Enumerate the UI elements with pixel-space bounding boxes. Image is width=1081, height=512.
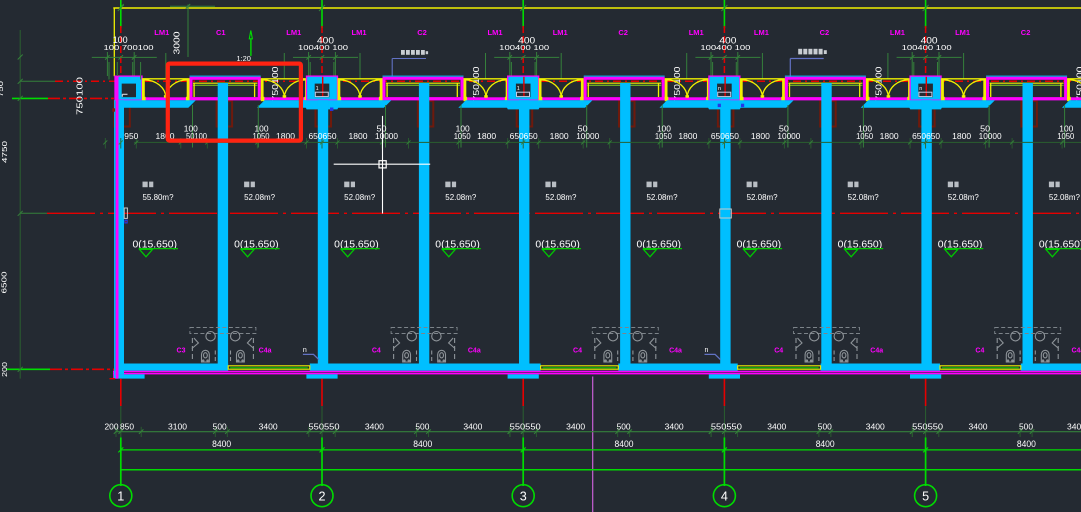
svg-text:C2: C2 — [1021, 28, 1031, 37]
svg-text:LM1: LM1 — [955, 28, 970, 37]
svg-text:52.08m?: 52.08m? — [344, 193, 376, 202]
svg-text:LM1: LM1 — [154, 28, 169, 37]
svg-text:3400: 3400 — [767, 422, 786, 432]
svg-text:500: 500 — [818, 422, 832, 432]
svg-text:500: 500 — [1019, 422, 1033, 432]
svg-text:LM1: LM1 — [890, 28, 905, 37]
svg-text:1: 1 — [517, 86, 520, 92]
svg-text:10000: 10000 — [375, 131, 398, 141]
svg-text:8400: 8400 — [615, 439, 634, 449]
svg-text:1: 1 — [117, 489, 124, 503]
svg-text:750: 750 — [0, 81, 5, 97]
svg-text:750100: 750100 — [472, 66, 481, 102]
svg-text:850: 850 — [120, 422, 134, 432]
svg-text:100 700100: 100 700100 — [104, 43, 154, 52]
svg-text:200: 200 — [0, 362, 9, 377]
svg-text:C4a: C4a — [870, 348, 883, 355]
svg-text:52.08m?: 52.08m? — [545, 193, 577, 202]
svg-text:100400 100: 100400 100 — [499, 43, 549, 52]
svg-text:750100: 750100 — [75, 76, 84, 115]
svg-text:C2: C2 — [820, 28, 830, 37]
svg-text:750100: 750100 — [874, 66, 883, 102]
svg-text:LM1: LM1 — [488, 28, 503, 37]
svg-text:C1: C1 — [216, 28, 226, 37]
svg-text:100: 100 — [858, 123, 872, 133]
svg-text:550550: 550550 — [711, 422, 742, 432]
svg-text:C4: C4 — [774, 348, 783, 355]
svg-text:550550: 550550 — [510, 422, 541, 432]
svg-text:C4: C4 — [975, 348, 984, 355]
svg-text:8400: 8400 — [816, 439, 835, 449]
svg-text:650650: 650650 — [510, 131, 538, 141]
svg-text:10000: 10000 — [777, 131, 800, 141]
svg-text:1: 1 — [316, 86, 319, 92]
svg-text:C2: C2 — [417, 28, 427, 37]
svg-text:3400: 3400 — [365, 422, 384, 432]
svg-text:3400: 3400 — [969, 422, 988, 432]
svg-text:C4: C4 — [372, 348, 381, 355]
svg-text:52.08m?: 52.08m? — [647, 193, 679, 202]
svg-text:500: 500 — [415, 422, 429, 432]
svg-text:650650: 650650 — [711, 131, 739, 141]
svg-text:LM1: LM1 — [286, 28, 301, 37]
svg-text:1800: 1800 — [678, 131, 697, 141]
svg-text:6500: 6500 — [0, 272, 9, 294]
svg-text:3400: 3400 — [866, 422, 885, 432]
svg-text:200: 200 — [105, 422, 119, 432]
svg-text:LM1: LM1 — [689, 28, 704, 37]
svg-text:1800: 1800 — [550, 131, 569, 141]
svg-text:n: n — [303, 347, 307, 354]
svg-text:n: n — [718, 86, 721, 92]
svg-text:5: 5 — [922, 489, 929, 503]
svg-text:C2: C2 — [618, 28, 628, 37]
svg-text:1800: 1800 — [349, 131, 368, 141]
svg-text:3400: 3400 — [463, 422, 482, 432]
svg-text:3: 3 — [520, 489, 527, 503]
svg-text:550550: 550550 — [309, 422, 340, 432]
svg-text:10000: 10000 — [979, 131, 1002, 141]
svg-text:LM1: LM1 — [754, 28, 769, 37]
svg-text:C4a: C4a — [1071, 348, 1081, 355]
svg-text:C4a: C4a — [259, 348, 272, 355]
svg-text:n: n — [919, 86, 922, 92]
svg-text:1800: 1800 — [880, 131, 899, 141]
svg-text:3400: 3400 — [665, 422, 684, 432]
svg-text:100: 100 — [1059, 123, 1073, 133]
svg-text:100: 100 — [255, 123, 269, 133]
svg-text:650650: 650650 — [912, 131, 940, 141]
svg-text:650650: 650650 — [309, 131, 337, 141]
svg-text:3400: 3400 — [566, 422, 585, 432]
svg-text:4: 4 — [721, 489, 728, 503]
svg-text:52.08m?: 52.08m? — [747, 193, 779, 202]
svg-text:550550: 550550 — [912, 422, 943, 432]
svg-text:1800: 1800 — [751, 131, 770, 141]
svg-text:8400: 8400 — [212, 439, 231, 449]
svg-text:C3: C3 — [177, 348, 186, 355]
svg-text:55.80m?: 55.80m? — [143, 193, 175, 202]
svg-text:10000: 10000 — [576, 131, 599, 141]
svg-text:C4a: C4a — [468, 348, 481, 355]
svg-text:100: 100 — [456, 123, 470, 133]
svg-text:8400: 8400 — [1017, 439, 1036, 449]
svg-text:LM1: LM1 — [352, 28, 367, 37]
svg-text:750100: 750100 — [673, 66, 682, 102]
svg-text:3000: 3000 — [173, 31, 182, 55]
svg-text:n: n — [704, 347, 708, 354]
svg-text:52.08m?: 52.08m? — [848, 193, 880, 202]
svg-text:3100: 3100 — [168, 422, 187, 432]
svg-text:C4a: C4a — [669, 348, 682, 355]
svg-text:52.08m?: 52.08m? — [948, 193, 980, 202]
svg-text:3400: 3400 — [1067, 422, 1081, 432]
svg-text:C4: C4 — [573, 348, 582, 355]
svg-text:LM1: LM1 — [553, 28, 568, 37]
svg-text:500: 500 — [213, 422, 227, 432]
svg-text:950: 950 — [124, 131, 138, 141]
svg-text:100400 100: 100400 100 — [902, 43, 952, 52]
svg-text:52.08m?: 52.08m? — [1049, 193, 1081, 202]
svg-text:500: 500 — [617, 422, 631, 432]
svg-text:100400 100: 100400 100 — [298, 43, 348, 52]
svg-text:1:20: 1:20 — [237, 54, 251, 63]
svg-text:1800: 1800 — [952, 131, 971, 141]
svg-text:1800: 1800 — [477, 131, 496, 141]
svg-text:2: 2 — [318, 489, 325, 503]
svg-text:3400: 3400 — [259, 422, 278, 432]
svg-text:750100: 750100 — [1076, 66, 1081, 102]
svg-text:8400: 8400 — [413, 439, 432, 449]
svg-text:100: 100 — [657, 123, 671, 133]
svg-text:100400 100: 100400 100 — [700, 43, 750, 52]
svg-text:52.08m?: 52.08m? — [445, 193, 477, 202]
svg-text:52.08m?: 52.08m? — [244, 193, 276, 202]
svg-text:4750: 4750 — [0, 141, 9, 163]
